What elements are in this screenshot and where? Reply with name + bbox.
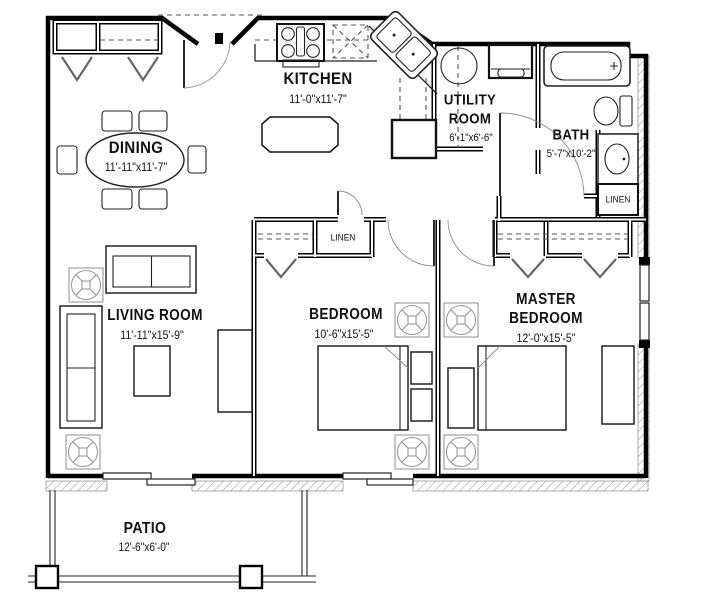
bedroom-window xyxy=(343,473,391,479)
linen-bath-label: LINEN xyxy=(606,195,631,206)
dining-chair xyxy=(57,146,77,174)
kitchen-label: KITCHEN xyxy=(284,69,353,89)
washer-symbol xyxy=(489,45,532,78)
linen-hall-label: LINEN xyxy=(331,233,356,244)
floor-plan-drawing xyxy=(0,0,710,598)
bathtub-symbol xyxy=(544,46,630,86)
ceiling-fan-symbol xyxy=(69,268,103,302)
utility-label-line1: UTILITY xyxy=(444,92,496,109)
living-dims: 11'-11"x15'-9" xyxy=(120,328,183,342)
toilet-symbol xyxy=(594,96,632,126)
bathroom-sink-symbol xyxy=(598,134,638,184)
floor-plan: KITCHEN 11'-0"x11'-7" DINING 11'-11"x11'… xyxy=(0,0,710,598)
dining-chair xyxy=(102,189,132,209)
cabinet xyxy=(218,330,252,412)
utility-label-line2: ROOM xyxy=(449,111,491,128)
master-label-line2: BEDROOM xyxy=(509,310,583,328)
patio-post xyxy=(36,566,58,588)
master-label-line1: MASTER xyxy=(516,291,576,309)
stove-symbol xyxy=(277,24,324,67)
utility-dims: 6'-1"x6'-6" xyxy=(449,132,492,144)
patio-railing xyxy=(28,490,316,588)
ceiling-fan-symbol xyxy=(66,435,100,469)
bedroom-label: BEDROOM xyxy=(309,306,383,324)
kitchen-island xyxy=(262,117,338,152)
kitchen-peninsula xyxy=(392,120,436,158)
bedroom-dims: 10'-6"x15'-5" xyxy=(314,327,373,341)
dining-chair xyxy=(102,111,132,131)
patio-dims: 12'-6"x6'-0" xyxy=(119,542,170,554)
ceiling-fan-symbol xyxy=(395,435,429,469)
dining-chair xyxy=(139,111,167,131)
corner-sink-symbol xyxy=(369,10,440,81)
bed xyxy=(318,346,408,430)
master-door-arc xyxy=(448,220,494,266)
bedroom-door-arc xyxy=(388,220,434,266)
coffee-table xyxy=(134,346,170,396)
linen-door-arc xyxy=(338,191,362,215)
patio-label: PATIO xyxy=(124,520,167,538)
dresser xyxy=(602,346,634,424)
bedroom-furniture xyxy=(318,346,432,430)
ceiling-fan-symbol xyxy=(444,435,478,469)
entry-door-jamb xyxy=(215,33,223,44)
nightstand xyxy=(411,352,432,384)
bath-dims: 5'-7"x10'-2" xyxy=(547,148,596,160)
dining-chair xyxy=(139,189,167,209)
patio-post xyxy=(240,566,262,588)
dining-label: DINING xyxy=(109,138,163,158)
master-furniture xyxy=(448,346,634,430)
loveseat xyxy=(60,306,102,428)
ceiling-fan-symbol xyxy=(395,303,429,337)
bath-label: BATH xyxy=(552,127,589,144)
living-label: LIVING ROOM xyxy=(107,307,203,325)
nightstand xyxy=(411,389,432,421)
entry-door-arc xyxy=(184,42,230,88)
master-dims: 12'-0"x15'-5" xyxy=(516,331,575,345)
kitchen-dims: 11'-0"x11'-7" xyxy=(289,92,347,106)
water-heater-symbol xyxy=(441,48,477,84)
patio-slider xyxy=(103,473,151,479)
master-window xyxy=(640,265,649,301)
bed xyxy=(478,346,566,430)
ceiling-fan-symbol xyxy=(444,303,478,337)
dining-dims: 11'-11"x11'-7" xyxy=(105,160,168,174)
nightstand xyxy=(448,368,474,428)
dining-chair xyxy=(188,146,206,173)
